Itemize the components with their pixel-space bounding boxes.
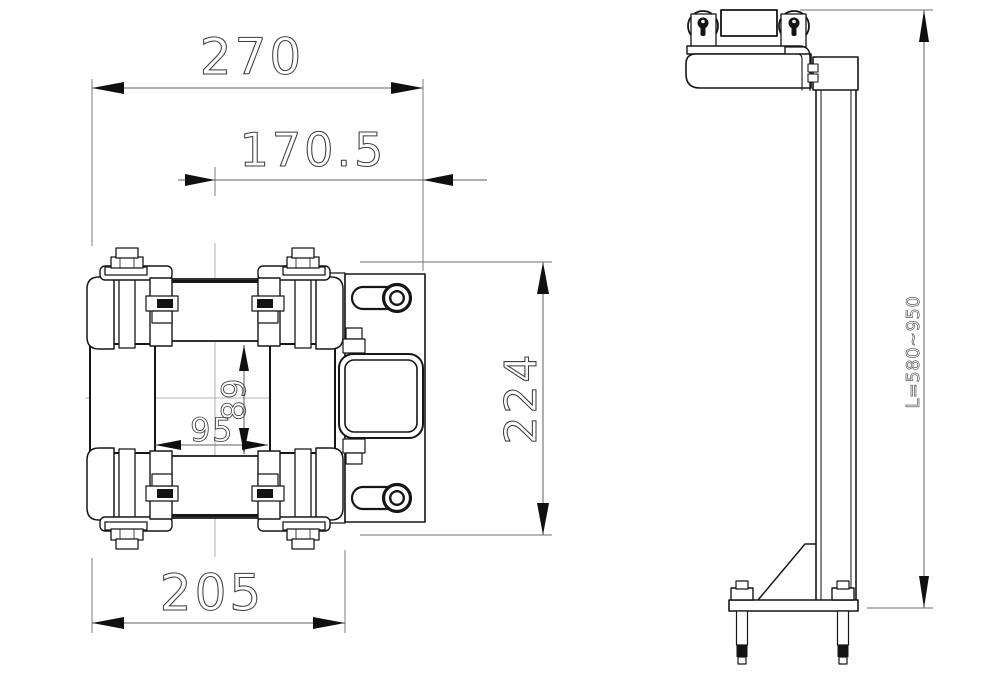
- axle-pin-right: [792, 20, 796, 24]
- anchor-tip: [839, 657, 847, 664]
- arrowhead: [537, 262, 549, 294]
- bolt-hole-top: [390, 291, 404, 305]
- anchor-cap: [736, 581, 748, 589]
- arrowhead: [919, 576, 929, 608]
- side-view: L=580~950: [686, 10, 933, 664]
- anchor-nut: [832, 588, 854, 600]
- arrowhead: [92, 617, 124, 629]
- arrowhead: [919, 10, 929, 42]
- corner-assembly-top-right: [252, 248, 343, 349]
- head-block: [721, 10, 777, 36]
- anchor-tip: [738, 657, 746, 664]
- dim-bottom-width: 205: [92, 550, 345, 633]
- front-view: 270 170.5 205 224: [85, 28, 552, 633]
- dim-center-to-plate: 170.5: [178, 123, 487, 196]
- anchor-thread: [838, 645, 849, 657]
- anchor-thread: [737, 645, 748, 657]
- anchor-cap: [837, 581, 849, 589]
- anchor-bolt-left: [731, 581, 753, 664]
- corner-assembly-bottom-right: [252, 448, 343, 549]
- dim-length-label: L=580~950: [904, 295, 924, 408]
- drawing-canvas: 270 170.5 205 224: [0, 0, 1000, 700]
- arrowhead: [537, 503, 549, 535]
- dim-270-label: 270: [200, 28, 304, 86]
- corner-assembly-bottom-left: [87, 448, 178, 549]
- base-plate: [729, 600, 858, 611]
- arrowhead: [92, 82, 124, 94]
- right-side-roller: [270, 344, 335, 453]
- arrowhead: [155, 440, 181, 450]
- arrowhead: [391, 82, 423, 94]
- arm-body: [686, 54, 811, 88]
- bolt-hole-bottom: [390, 491, 404, 505]
- anchor-bolt-right: [832, 581, 854, 664]
- square-tube-pocket-inner: [345, 360, 417, 432]
- axle-slot-right: [792, 26, 797, 36]
- anchor-nut: [731, 588, 753, 600]
- axle-pin-left: [701, 20, 705, 24]
- left-side-roller: [90, 344, 155, 453]
- dim-95-label: 95: [190, 411, 234, 449]
- corner-assembly-top-left: [87, 248, 178, 349]
- arrowhead: [239, 345, 249, 371]
- technical-drawing: 270 170.5 205 224: [0, 0, 1000, 700]
- gusset: [758, 544, 816, 600]
- dim-mast-length: L=580~950: [800, 10, 933, 608]
- dim-224-label: 224: [496, 352, 547, 445]
- pocket-clip-bottom-small: [346, 453, 362, 464]
- dim-205-label: 205: [160, 564, 264, 622]
- pocket-clip-top: [343, 339, 365, 353]
- mast-top-sleeve: [813, 57, 858, 90]
- arrowhead: [242, 440, 268, 450]
- dim-170-5-label: 170.5: [240, 123, 387, 177]
- arrowhead: [423, 174, 453, 186]
- sleeve-clamp-bolt-lower: [808, 74, 818, 82]
- arrowhead: [313, 617, 345, 629]
- axle-slot-left: [701, 26, 706, 36]
- anchor-stud: [838, 611, 849, 645]
- sleeve-clamp-bolt-upper: [808, 64, 818, 72]
- pocket-clip-bottom: [343, 439, 365, 453]
- pocket-clip-top-small: [346, 328, 362, 339]
- arrowhead: [185, 174, 215, 186]
- arm-top-plate: [687, 46, 785, 54]
- anchor-stud: [737, 611, 748, 645]
